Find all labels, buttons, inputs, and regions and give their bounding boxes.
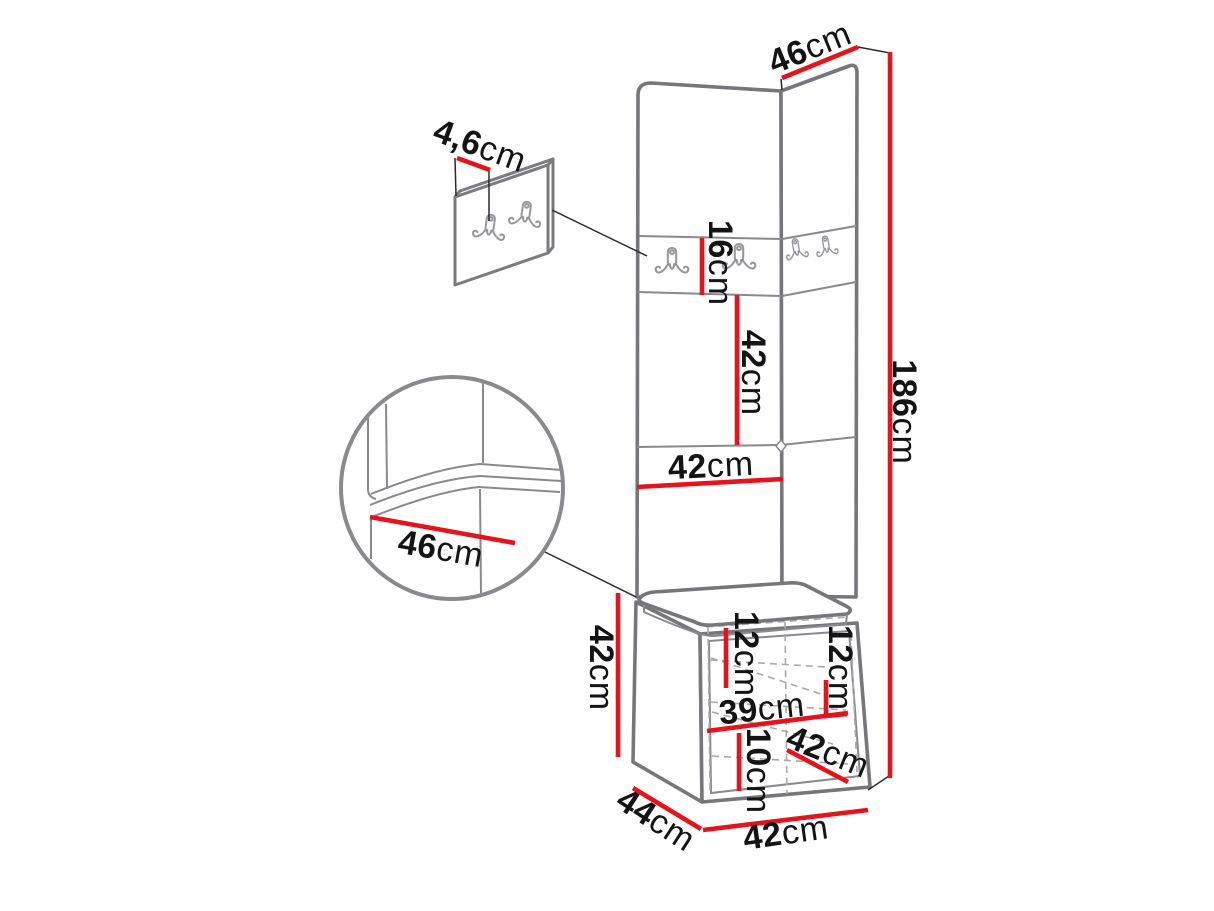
dimension-label: 10cm [739,728,777,814]
dimension-value: 42 [667,447,708,487]
dimension-label: 42cm [741,808,832,858]
dimension-unit: cm [582,664,620,711]
dimension-label: 42cm [582,625,620,711]
dimension-unit: cm [885,417,923,464]
right-panel [781,65,857,597]
dimension-value: 12 [727,611,765,650]
dimension-label: 16cm [701,220,739,306]
dimension-niche-height-right: 12cm [821,625,859,716]
height-extension-top [858,47,890,53]
dimension-unit: cm [434,530,487,576]
dimension-unit: cm [821,664,859,711]
dimension-unit: cm [739,767,777,814]
dimension-label: 186cm [885,359,923,465]
dimension-value: 39 [717,691,760,733]
dimension-label: 12cm [821,625,859,711]
dimension-unit: cm [734,369,772,416]
furniture-dimension-diagram: 46cm 4,6cm 16cm 42cm 42cm 186cm 46cm 42c… [0,0,1214,911]
dimension-value: 10 [739,728,777,767]
dimension-value: 16 [701,220,739,259]
dimension-label: 12cm [727,611,765,697]
dimension-hook-strip-height: 16cm [701,220,739,306]
width-extension [781,79,782,90]
dimension-value: 186 [885,359,923,417]
dimension-value: 42 [741,815,785,858]
dimension-unit: cm [706,445,755,485]
dimension-unit: cm [779,808,831,852]
diagram-canvas: 46cm 4,6cm 16cm 42cm 42cm 186cm 46cm 42c… [0,0,1214,911]
dimension-label: 42cm [667,445,755,487]
hook-panel-detail-view [455,159,553,285]
dimension-bottom-niche-height: 10cm [739,728,777,814]
depth-extension-left [455,158,456,196]
backrest-corner-edge-2 [386,404,387,489]
dimension-unit: cm [701,259,739,306]
seat-detail-leader [545,552,636,597]
hook-detail-leader [552,210,647,256]
dimension-hook-panel-depth: 4,6cm [428,112,531,181]
dimension-base-width: 42cm [703,808,868,858]
dimension-value: 12 [821,625,859,664]
dimension-total-height: 186cm [885,52,923,778]
dimension-value: 46 [395,523,440,567]
dimension-value: 42 [582,625,620,664]
dimension-cabinet-height: 42cm [582,593,620,757]
dimension-label: 4,6cm [428,112,531,181]
dimension-value: 42 [734,330,772,369]
dimension-label: 42cm [734,330,772,416]
dimension-niche-height-left: 12cm [726,611,765,697]
